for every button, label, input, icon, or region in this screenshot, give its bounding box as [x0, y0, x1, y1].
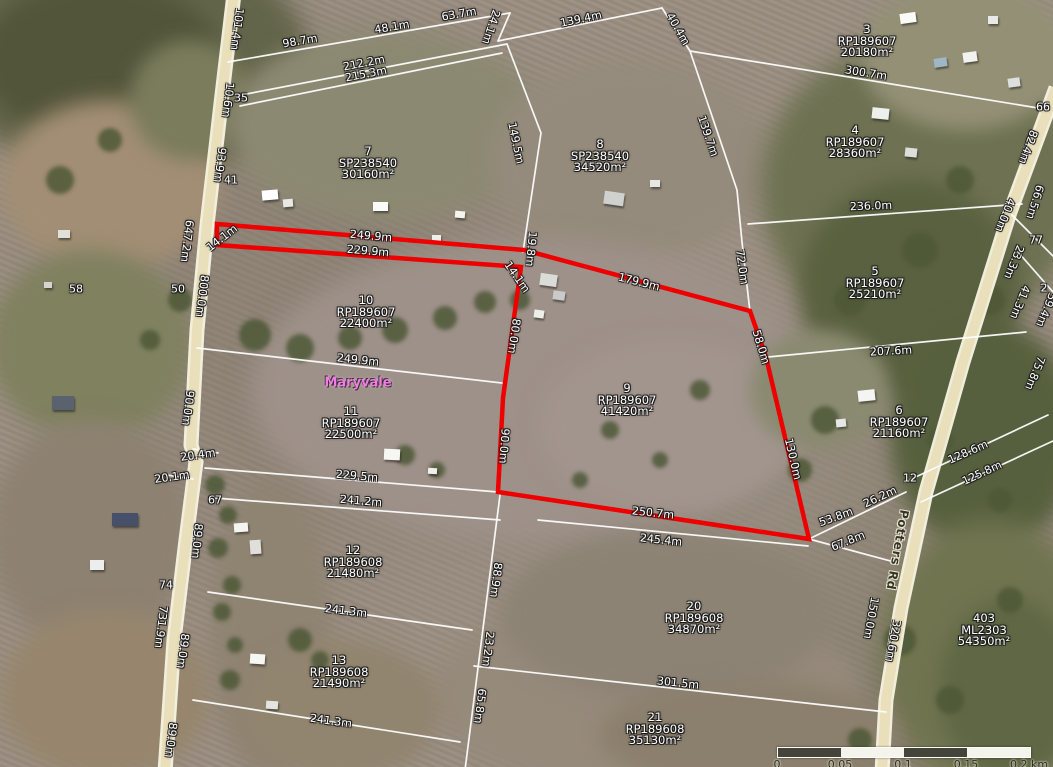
house-number-label: 58 [69, 284, 83, 295]
parcel-label-lot-7: 7 SP238540 30160m² [339, 146, 397, 181]
lot-area: 21160m² [870, 428, 929, 440]
measurement-label: 19.8m [524, 231, 538, 267]
house-number-label: 2 [1041, 283, 1048, 294]
parcel-label-lot-3: 3 RP189607 20180m² [838, 24, 897, 59]
parcel-label-lot-4: 4 RP189607 28360m² [826, 125, 885, 160]
lot-area: 25210m² [846, 289, 905, 301]
lot-area: 30160m² [339, 169, 397, 181]
house-number-label: 41 [224, 175, 238, 186]
lot-area: 35130m² [626, 735, 685, 747]
measurement-label: 229.9m [346, 244, 389, 259]
measurement-label: 207.6m [870, 344, 913, 357]
lot-area: 22500m² [322, 429, 381, 441]
scale-tick-label: 0.1 [894, 758, 912, 767]
scale-tick-label: 0.15 [954, 758, 979, 767]
parcel-label-lot-10: 10 RP189607 22400m² [337, 295, 396, 330]
measurement-label: 241.2m [339, 494, 382, 509]
parcel-label-lot-9: 9 RP189607 41420m² [598, 383, 657, 418]
parcel-label-lot-21: 21 RP189608 35130m² [626, 712, 685, 747]
house-number-label: 74 [159, 580, 173, 591]
scale-segment [967, 748, 1030, 757]
scale-tick-label: 0.2 km [1010, 758, 1048, 767]
lot-area: 22400m² [337, 318, 396, 330]
parcel-label-lot-13: 13 RP189608 21490m² [310, 655, 369, 690]
measurement-label: 90.0m [497, 428, 510, 464]
scale-tick-label: 0 [774, 758, 781, 767]
measurement-label: 89.0m [190, 523, 204, 559]
parcel-label-lot-12: 12 RP189608 21480m² [324, 545, 383, 580]
lot-area: 34870m² [665, 624, 724, 636]
parcel-label-lot-8: 8 SP238540 34520m² [571, 139, 629, 174]
scale-segment [904, 748, 967, 757]
parcel-label-lot-6: 6 RP189607 21160m² [870, 405, 929, 440]
measurement-label: 236.0m [850, 200, 893, 212]
parcel-label-lot-20: 20 RP189608 34870m² [665, 601, 724, 636]
measurement-label: 249.9m [349, 229, 392, 244]
house-number-label: 35 [234, 93, 248, 104]
lot-area: 20180m² [838, 47, 897, 59]
lot-area: 21490m² [310, 678, 369, 690]
parcel-label-lot-403: 403 ML2303 54350m² [958, 613, 1010, 648]
scale-segment [841, 748, 904, 757]
lot-area: 54350m² [958, 636, 1010, 648]
aerial-map[interactable]: 101.4m98.7m48.1m63.7m24.1m139.4m40.4m212… [0, 0, 1053, 767]
lot-area: 28360m² [826, 148, 885, 160]
measurement-label: 229.5m [335, 469, 378, 484]
locality-label-maryvale: Maryvale [324, 378, 391, 389]
lot-area: 41420m² [598, 406, 657, 418]
parcel-label-lot-11: 11 RP189607 22500m² [322, 406, 381, 441]
scale-segment [778, 748, 841, 757]
lot-area: 34520m² [571, 162, 629, 174]
house-number-label: 66 [1036, 102, 1050, 113]
scale-bar: 00.050.10.150.2 km [777, 747, 1053, 767]
scale-tick-label: 0.05 [828, 758, 853, 767]
house-number-label: 67 [208, 495, 222, 506]
house-number-label: 12 [903, 473, 917, 484]
parcel-label-lot-5: 5 RP189607 25210m² [846, 266, 905, 301]
house-number-label: 77 [1029, 235, 1043, 246]
scale-bar-segments [777, 747, 1031, 758]
lot-area: 21480m² [324, 568, 383, 580]
house-number-label: 50 [171, 284, 185, 295]
